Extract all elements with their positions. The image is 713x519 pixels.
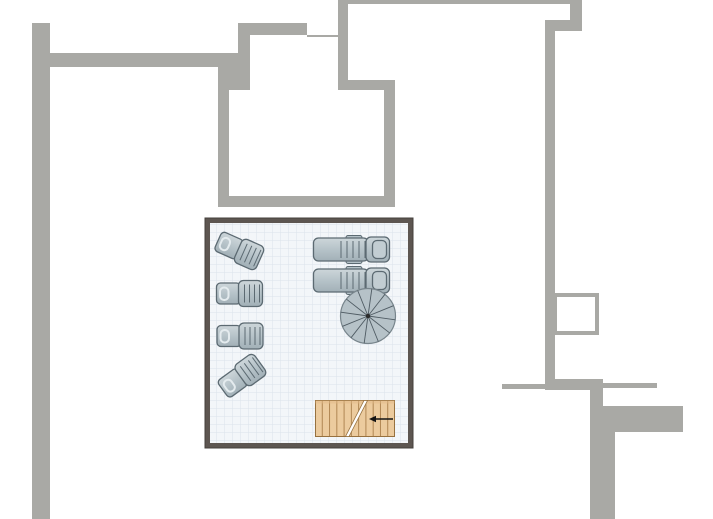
right-thin-wall-right: [603, 383, 657, 388]
sun-lounger-small: [217, 281, 263, 307]
lounger-pillow: [373, 241, 387, 259]
left-exterior-wall: [32, 23, 50, 519]
sun-lounger-large: [314, 236, 390, 264]
lounger-back: [239, 323, 263, 349]
right-thin-wall-left: [502, 384, 545, 389]
right-horizontal-bar: [545, 379, 603, 390]
top-horizontal-wall: [50, 53, 249, 67]
top-edge-thin-wall: [338, 0, 570, 4]
lower-right-horizontal-bar: [590, 406, 683, 432]
wall-window-box: [555, 295, 597, 333]
spiral-staircase-center-post: [366, 314, 370, 318]
sun-lounger-small: [217, 323, 263, 349]
middle-room-top-wall: [338, 80, 395, 90]
spiral-staircase: [341, 289, 396, 344]
floorplan-svg: [0, 0, 713, 519]
lounger-back: [239, 281, 263, 307]
lounger-pillow: [373, 272, 387, 290]
middle-room-left-wall: [218, 90, 229, 207]
wooden-stairs: [316, 401, 395, 437]
middle-room-right-wall: [384, 90, 395, 196]
center-vertical-wall: [338, 0, 348, 90]
middle-room-bottom-wall: [218, 196, 395, 207]
stairs-top-shade: [316, 401, 395, 404]
floorplan-canvas: [0, 0, 713, 519]
thin-wall-segment: [307, 35, 338, 37]
upper-horizontal-bar: [238, 23, 307, 35]
